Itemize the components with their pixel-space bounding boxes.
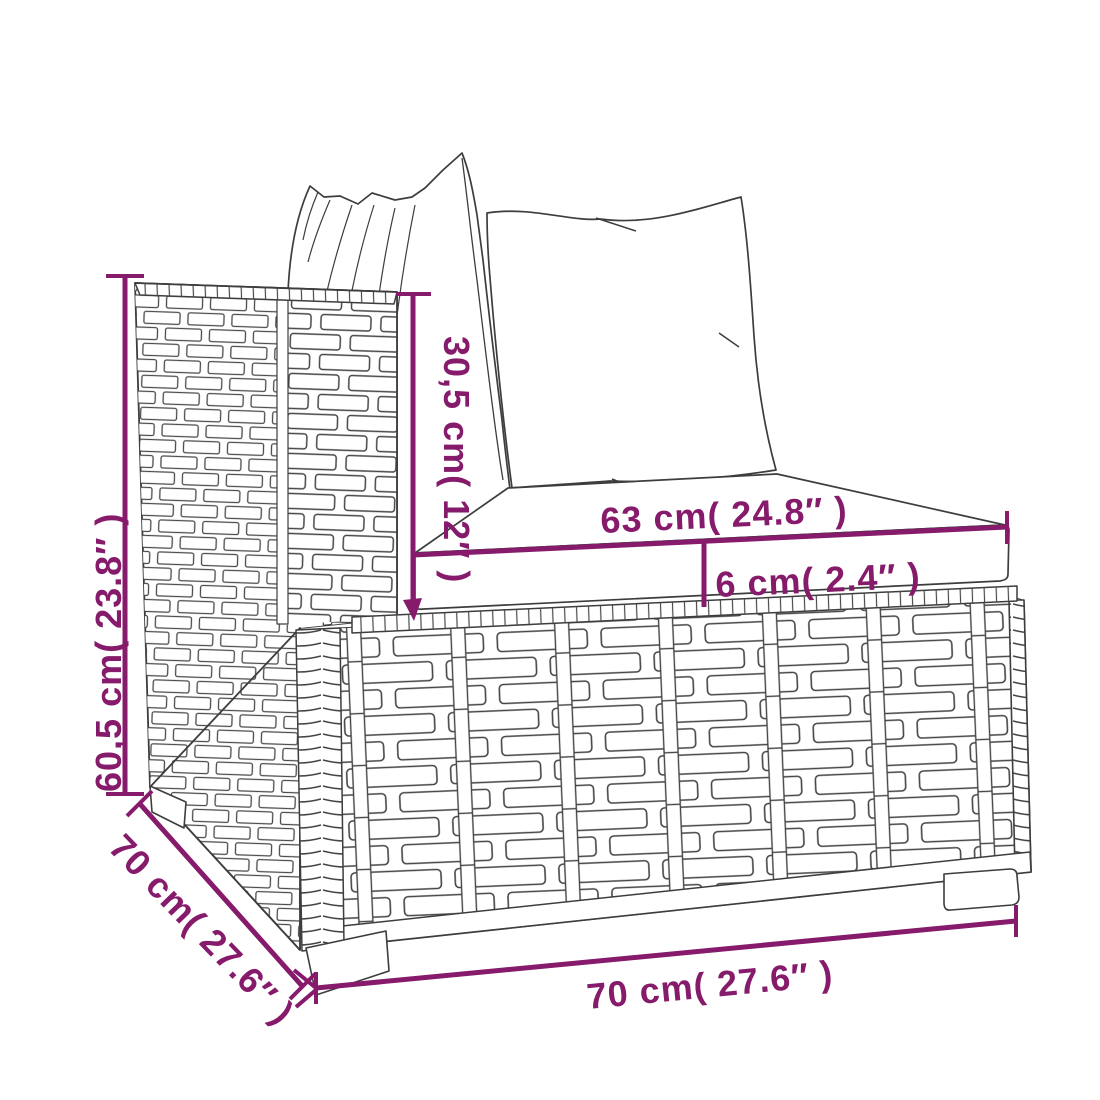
dim-backrest-height-label: 30,5 cm( 12″ )	[436, 336, 477, 583]
dim-height-label: 60,5 cm( 23.8″ )	[88, 513, 129, 792]
product-dimension-diagram: 60,5 cm( 23.8″ ) 30,5 cm( 12″ ) 63 cm( 2…	[0, 0, 1100, 1100]
dim-height: 60,5 cm( 23.8″ )	[88, 276, 144, 794]
base-panel	[300, 599, 1031, 950]
back-pillow-right	[487, 197, 776, 488]
foot-front-right	[944, 869, 1019, 910]
dim-front-width-label: 70 cm( 27.6″ )	[585, 952, 835, 1017]
diagram-canvas: 60,5 cm( 23.8″ ) 30,5 cm( 12″ ) 63 cm( 2…	[0, 0, 1100, 1100]
base-corner-wrap	[296, 628, 344, 951]
armrest-corner-seam	[277, 289, 288, 624]
